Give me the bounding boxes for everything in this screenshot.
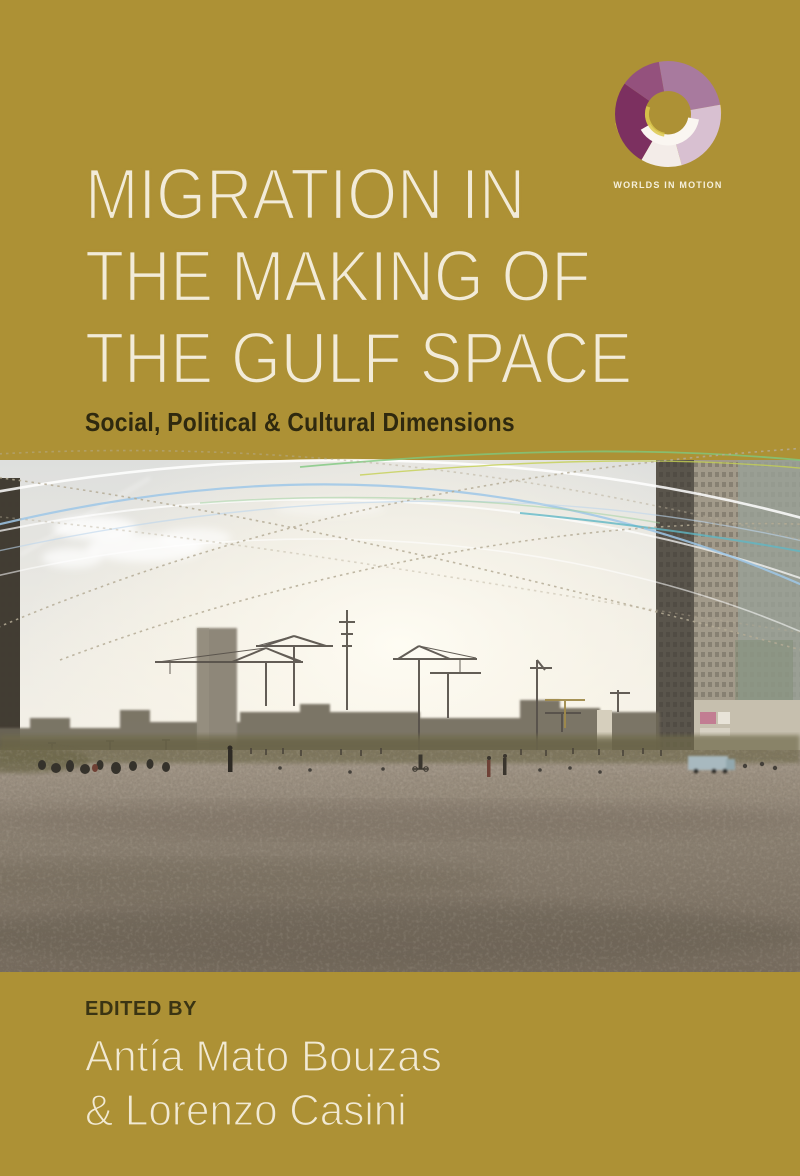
book-subtitle: Social, Political & Cultural Dimensions [85,407,515,438]
title-line-2: THE MAKING OF [85,236,632,318]
worlds-in-motion-logo-icon [614,60,722,168]
book-title: MIGRATION IN THE MAKING OF THE GULF SPAC… [85,154,632,400]
editor-names: Antía Mato Bouzas & Lorenzo Casini [85,1030,442,1138]
book-cover: WORLDS IN MOTION MIGRATION IN THE MAKING… [0,0,800,1176]
title-line-3: THE GULF SPACE [85,318,632,400]
edited-by-label: EDITED BY [85,998,457,1021]
cover-photo [0,460,800,972]
title-line-1: MIGRATION IN [85,154,632,236]
editor-name-2: & Lorenzo Casini [85,1084,442,1138]
credits: EDITED BY Antía Mato Bouzas & Lorenzo Ca… [85,998,457,1138]
editor-name-1: Antía Mato Bouzas [85,1030,442,1084]
